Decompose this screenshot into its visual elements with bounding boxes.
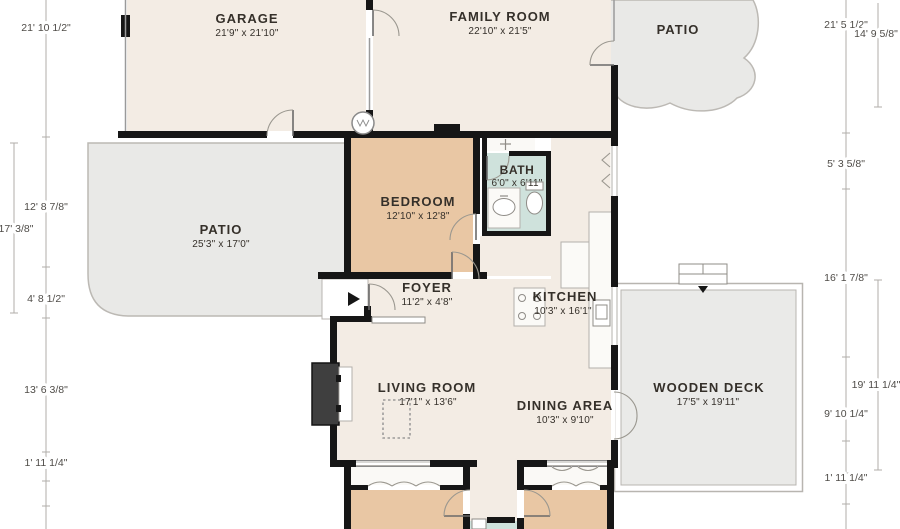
patio-top-shape <box>597 0 758 111</box>
foyer-dims: 11'2" x 4'8" <box>402 297 453 308</box>
fridge-icon <box>561 242 589 288</box>
wooden-deck-dims: 17'5" x 19'11" <box>677 397 740 408</box>
garage-label: GARAGE <box>215 11 278 26</box>
dimension-lines-left: 21' 10 1/2" 12' 8 7/8" 4' 8 1/2" 13' 6 3… <box>0 0 71 529</box>
window-sill-foyer <box>372 317 425 323</box>
dim-right-2: 16' 1 7/8" <box>824 272 868 284</box>
dim-right-1: 5' 3 5/8" <box>827 158 865 170</box>
dim-left-outer-0: 17' 3/8" <box>0 223 34 235</box>
foyer-label: FOYER <box>402 280 452 295</box>
deck-steps <box>679 264 727 293</box>
dining-area-dims: 10'3" x 9'10" <box>536 415 594 426</box>
patio-top-label: PATIO <box>657 22 700 37</box>
patio-left-label: PATIO <box>200 222 243 237</box>
wooden-deck-label: WOODEN DECK <box>653 380 764 395</box>
water-heater-icon <box>352 112 374 134</box>
bedroom-label: BEDROOM <box>381 194 456 209</box>
family-room-label: FAMILY ROOM <box>449 9 550 24</box>
dim-left-1: 12' 8 7/8" <box>24 201 68 213</box>
dining-area-label: DINING AREA <box>517 398 613 413</box>
dim-left-2: 4' 8 1/2" <box>27 293 65 305</box>
dimension-lines-right: 21' 5 1/2" 5' 3 5/8" 16' 1 7/8" 9' 10 1/… <box>824 0 900 529</box>
dim-right-outer-1: 19' 11 1/4" <box>852 379 900 391</box>
dim-right-outer-0: 14' 9 5/8" <box>854 28 898 40</box>
entry-porch <box>322 279 368 319</box>
bottom-bedroom-left <box>351 490 463 529</box>
garage-dims: 21'9" x 21'10" <box>215 28 278 39</box>
bath-label: BATH <box>500 163 535 177</box>
window-south-left <box>356 461 430 467</box>
dim-left-0: 21' 10 1/2" <box>21 22 71 34</box>
fireplace-icon <box>312 363 352 425</box>
dim-right-3: 9' 10 1/4" <box>824 408 868 420</box>
bottom-bedroom-right <box>524 490 607 529</box>
floor-plan: GARAGE 21'9" x 21'10" FAMILY ROOM 22'10"… <box>0 0 900 529</box>
kitchen-dims: 10'3" x 16'1" <box>534 306 592 317</box>
window-east-kitchen <box>611 287 619 345</box>
living-room-dims: 17'1" x 13'6" <box>399 397 457 408</box>
dim-left-4: 1' 11 1/4" <box>25 457 68 469</box>
bottom-shower-box <box>472 519 486 529</box>
dim-right-4: 1' 11 1/4" <box>825 472 868 484</box>
bedroom-dims: 12'10" x 12'8" <box>386 211 449 222</box>
bath-sink-icon <box>488 188 520 228</box>
hall-below-bath <box>480 236 551 276</box>
patio-left-dims: 25'3" x 17'0" <box>192 239 250 250</box>
living-room-label: LIVING ROOM <box>378 380 476 395</box>
family-room-dims: 22'10" x 21'5" <box>468 26 531 37</box>
kitchen-label: KITCHEN <box>533 289 598 304</box>
floor-plan-svg: GARAGE 21'9" x 21'10" FAMILY ROOM 22'10"… <box>0 0 900 529</box>
dim-left-3: 13' 6 3/8" <box>24 384 68 396</box>
bath-dims: 6'0" x 6'11" <box>492 178 543 189</box>
